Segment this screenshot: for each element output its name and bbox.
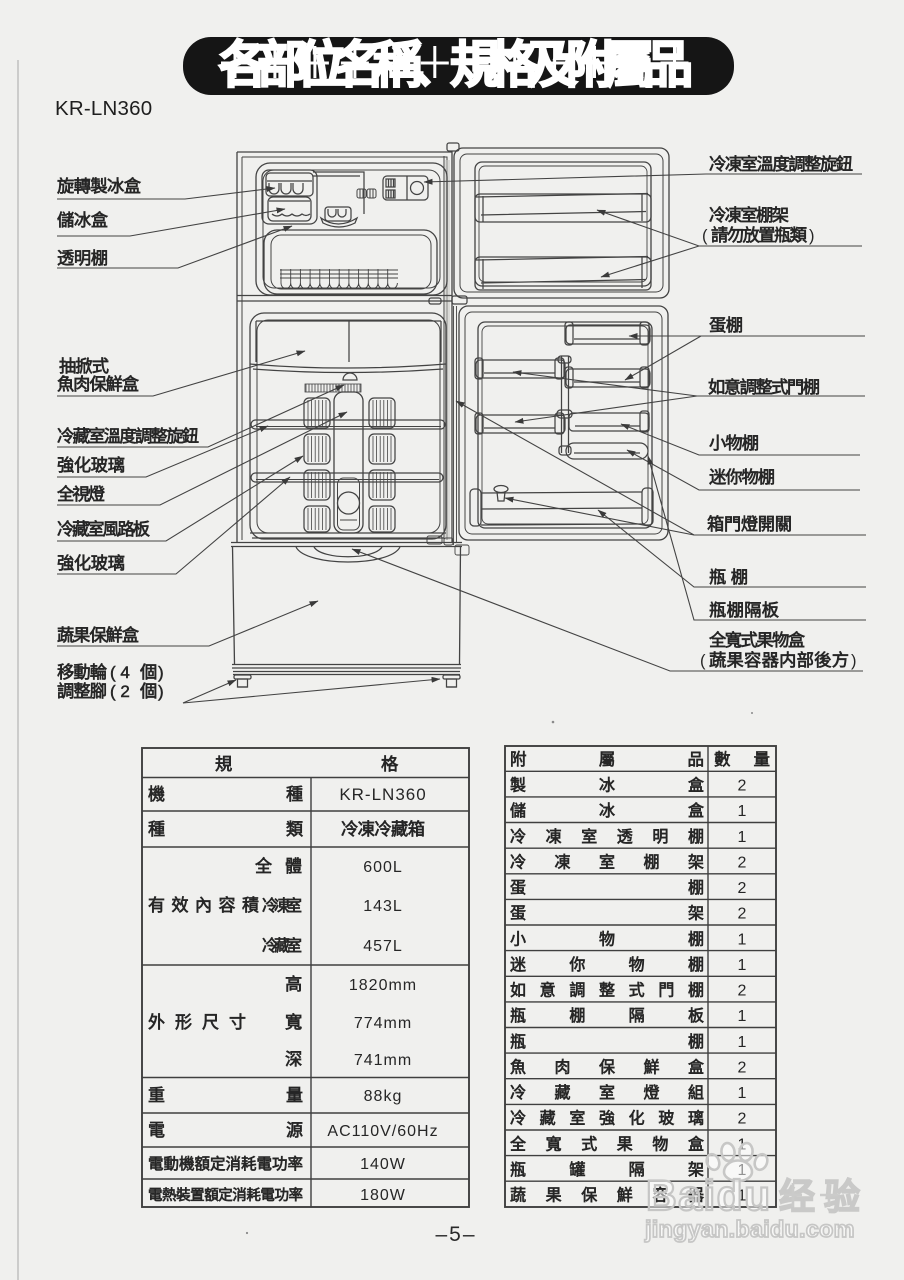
- svg-text:2: 2: [738, 854, 747, 871]
- svg-text:蛋棚: 蛋棚: [510, 879, 704, 897]
- svg-text:瓶棚: 瓶棚: [709, 567, 748, 587]
- svg-text:有效內容積: 有效內容積: [148, 896, 259, 915]
- svg-text:旋轉製冰盒: 旋轉製冰盒: [57, 176, 141, 196]
- svg-text:–5–: –5–: [435, 1223, 476, 1246]
- svg-text:瓶棚隔板: 瓶棚隔板: [510, 1007, 704, 1025]
- svg-text:附屬品: 附屬品: [510, 750, 704, 769]
- svg-text:強化玻璃: 強化玻璃: [57, 455, 125, 475]
- svg-text:2: 2: [738, 778, 747, 795]
- svg-text:): ): [158, 682, 164, 701]
- svg-text:深: 深: [285, 1049, 302, 1069]
- svg-text:AC110V/60Hz: AC110V/60Hz: [327, 1123, 438, 1140]
- svg-text:): ): [158, 663, 164, 682]
- svg-text:調整腳: 調整腳: [57, 681, 107, 701]
- svg-text:迷你物棚: 迷你物棚: [709, 467, 775, 487]
- svg-text:冷凍室: 冷凍室: [262, 897, 302, 915]
- svg-text:如意調整式門棚: 如意調整式門棚: [510, 981, 704, 1000]
- svg-text:蛋架: 蛋架: [510, 905, 704, 923]
- svg-text:1: 1: [738, 829, 747, 846]
- svg-text:143L: 143L: [363, 898, 403, 915]
- svg-text:2: 2: [738, 1059, 747, 1076]
- svg-text:冷藏室燈組: 冷藏室燈組: [510, 1084, 704, 1102]
- svg-text:請勿放置瓶類: 請勿放置瓶類: [711, 225, 807, 245]
- svg-text:2: 2: [738, 1111, 747, 1128]
- svg-text:741mm: 741mm: [354, 1052, 412, 1069]
- svg-text:1: 1: [738, 1034, 747, 1051]
- svg-text:個: 個: [140, 681, 157, 701]
- svg-text:600L: 600L: [363, 859, 403, 876]
- svg-text:高: 高: [285, 974, 302, 994]
- svg-text:儲冰盒: 儲冰盒: [510, 802, 704, 820]
- svg-text:): ): [851, 652, 857, 670]
- svg-text:冷凍室棚架: 冷凍室棚架: [510, 853, 704, 871]
- svg-text:數量: 數量: [714, 750, 770, 769]
- svg-text:1820mm: 1820mm: [349, 977, 417, 994]
- svg-text:電熱裝置額定消耗電功率: 電熱裝置額定消耗電功率: [148, 1187, 303, 1204]
- svg-text:電源: 電源: [148, 1121, 303, 1140]
- svg-text:冷藏室風路板: 冷藏室風路板: [57, 519, 150, 539]
- svg-text:( 2: ( 2: [110, 682, 130, 701]
- svg-text:迷你物棚: 迷你物棚: [510, 956, 704, 974]
- svg-text:): ): [809, 227, 815, 245]
- svg-text:儲冰盒: 儲冰盒: [57, 210, 108, 230]
- svg-text:冷凍室透明棚: 冷凍室透明棚: [510, 828, 704, 846]
- svg-text:140W: 140W: [360, 1156, 406, 1173]
- svg-text:瓶棚: 瓶棚: [510, 1033, 704, 1051]
- svg-text:個: 個: [140, 662, 157, 682]
- svg-text:全體: 全體: [255, 857, 302, 876]
- svg-text:如意調整式門棚: 如意調整式門棚: [708, 377, 820, 397]
- svg-text:1: 1: [738, 803, 747, 820]
- svg-text:1: 1: [738, 1085, 747, 1102]
- svg-text:蔬果容器内部後方: 蔬果容器内部後方: [709, 650, 849, 670]
- svg-text:製冰盒: 製冰盒: [510, 777, 704, 795]
- svg-text:魚肉保鮮盒: 魚肉保鮮盒: [57, 374, 139, 394]
- svg-text:蛋棚: 蛋棚: [709, 315, 743, 335]
- svg-text:(: (: [700, 652, 706, 670]
- svg-text:冷凍室棚架: 冷凍室棚架: [709, 205, 789, 225]
- svg-text:全寬式果物盒: 全寬式果物盒: [709, 630, 805, 650]
- svg-text:457L: 457L: [363, 938, 403, 955]
- svg-text:冷藏室強化玻璃: 冷藏室強化玻璃: [510, 1110, 704, 1128]
- svg-text:小物棚: 小物棚: [510, 930, 704, 948]
- svg-text:強化玻璃: 強化玻璃: [57, 553, 125, 573]
- svg-text:jingyan.baidu.com: jingyan.baidu.com: [644, 1216, 855, 1242]
- svg-text:瓶棚隔板: 瓶棚隔板: [709, 600, 779, 620]
- svg-text:1: 1: [738, 931, 747, 948]
- svg-text:電動機額定消耗電功率: 電動機額定消耗電功率: [148, 1155, 303, 1173]
- svg-text:冷凍冷藏箱: 冷凍冷藏箱: [341, 819, 425, 839]
- svg-text:( 4: ( 4: [110, 663, 130, 682]
- svg-text:規: 規: [215, 754, 232, 774]
- svg-text:88kg: 88kg: [364, 1088, 403, 1105]
- svg-text:抽掀式: 抽掀式: [59, 356, 109, 376]
- svg-text:全寬式果物盒: 全寬式果物盒: [510, 1135, 704, 1153]
- svg-text:(: (: [702, 227, 708, 245]
- svg-text:Baidu: Baidu: [646, 1173, 772, 1220]
- svg-text:蔬果保鮮盒: 蔬果保鮮盒: [57, 625, 139, 645]
- svg-text:透明棚: 透明棚: [57, 248, 108, 268]
- svg-text:重量: 重量: [148, 1086, 303, 1105]
- svg-text:魚肉保鮮盒: 魚肉保鮮盒: [510, 1058, 704, 1076]
- svg-text:KR-LN360: KR-LN360: [55, 97, 152, 120]
- svg-text:寬: 寬: [285, 1012, 302, 1032]
- svg-text:各部位名稱、規格及附屬品: 各部位名稱、規格及附屬品: [219, 37, 693, 93]
- svg-text:2: 2: [738, 983, 747, 1000]
- svg-text:移動輪: 移動輪: [57, 662, 107, 682]
- svg-text:180W: 180W: [360, 1187, 406, 1204]
- svg-text:全視燈: 全視燈: [57, 484, 105, 504]
- svg-text:2: 2: [738, 880, 747, 897]
- svg-text:冷凍室溫度調整旋鈕: 冷凍室溫度調整旋鈕: [709, 154, 853, 174]
- svg-text:種類: 種類: [148, 820, 303, 839]
- svg-text:冷藏室溫度調整旋鈕: 冷藏室溫度調整旋鈕: [57, 426, 199, 446]
- svg-text:小物棚: 小物棚: [709, 433, 759, 453]
- svg-text:1: 1: [738, 957, 747, 974]
- svg-text:冷藏室: 冷藏室: [262, 937, 302, 955]
- svg-text:774mm: 774mm: [354, 1015, 412, 1032]
- svg-text:2: 2: [738, 906, 747, 923]
- svg-text:機種: 機種: [148, 785, 303, 804]
- svg-text:格: 格: [381, 754, 398, 774]
- svg-text:1: 1: [738, 1008, 747, 1025]
- svg-text:箱門燈開關: 箱門燈開關: [707, 514, 792, 534]
- svg-text:外形尺寸: 外形尺寸: [148, 1013, 246, 1032]
- svg-text:KR-LN360: KR-LN360: [339, 785, 426, 804]
